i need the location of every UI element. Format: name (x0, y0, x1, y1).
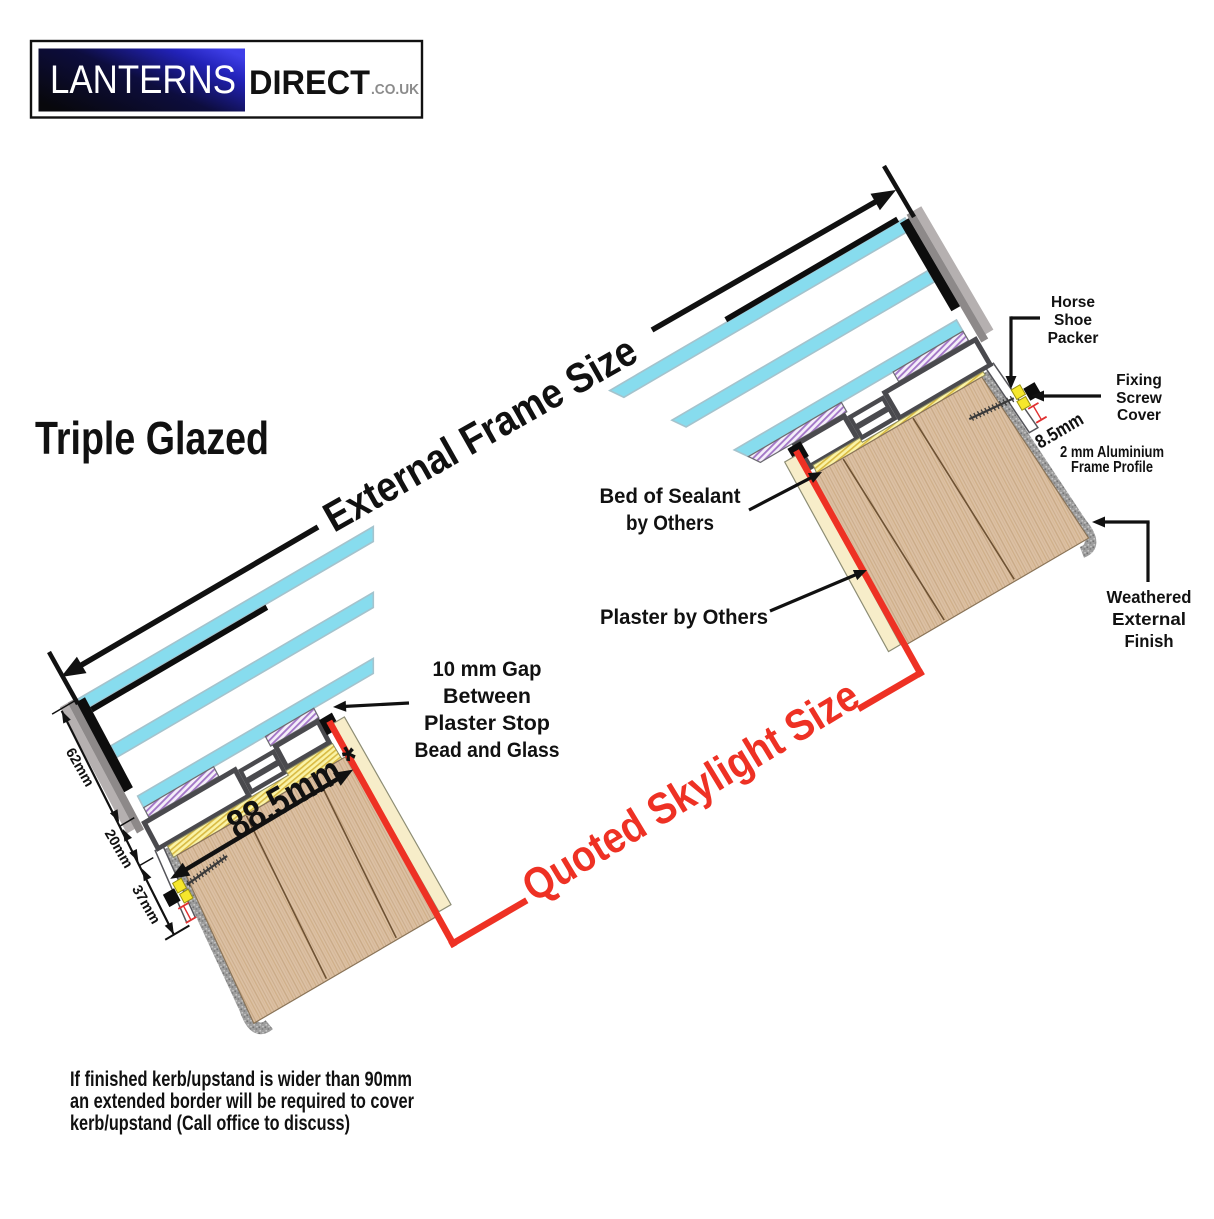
svg-text:Fixing: Fixing (1116, 372, 1162, 389)
svg-text:Cover: Cover (1117, 407, 1161, 424)
svg-text:Screw: Screw (1116, 390, 1163, 407)
svg-text:Bed of Sealant: Bed of Sealant (600, 484, 741, 508)
svg-text:Shoe: Shoe (1054, 312, 1092, 329)
svg-text:by Others: by Others (626, 511, 714, 535)
svg-text:Packer: Packer (1048, 330, 1099, 347)
svg-text:Horse: Horse (1051, 294, 1095, 311)
svg-text:an extended border will be req: an extended border will be required to c… (70, 1089, 414, 1113)
svg-text:External: External (1112, 609, 1186, 629)
svg-text:Plaster Stop: Plaster Stop (424, 711, 550, 735)
svg-text:10 mm Gap: 10 mm Gap (433, 657, 542, 681)
svg-text:If finished kerb/upstand is wi: If finished kerb/upstand is wider than 9… (70, 1067, 412, 1091)
svg-text:Weathered: Weathered (1107, 587, 1192, 607)
svg-text:DIRECT: DIRECT (249, 64, 370, 102)
svg-text:Triple Glazed: Triple Glazed (35, 412, 269, 464)
svg-text:Frame Profile: Frame Profile (1071, 459, 1153, 476)
svg-text:.CO.UK: .CO.UK (371, 82, 419, 98)
svg-text:Finish: Finish (1125, 631, 1174, 651)
svg-text:Bead and Glass: Bead and Glass (415, 738, 560, 762)
svg-text:Plaster by Others: Plaster by Others (600, 605, 768, 629)
svg-text:kerb/upstand (Call office to d: kerb/upstand (Call office to discuss) (70, 1111, 350, 1135)
svg-text:Between: Between (443, 684, 531, 708)
svg-text:LANTERNS: LANTERNS (50, 58, 236, 102)
